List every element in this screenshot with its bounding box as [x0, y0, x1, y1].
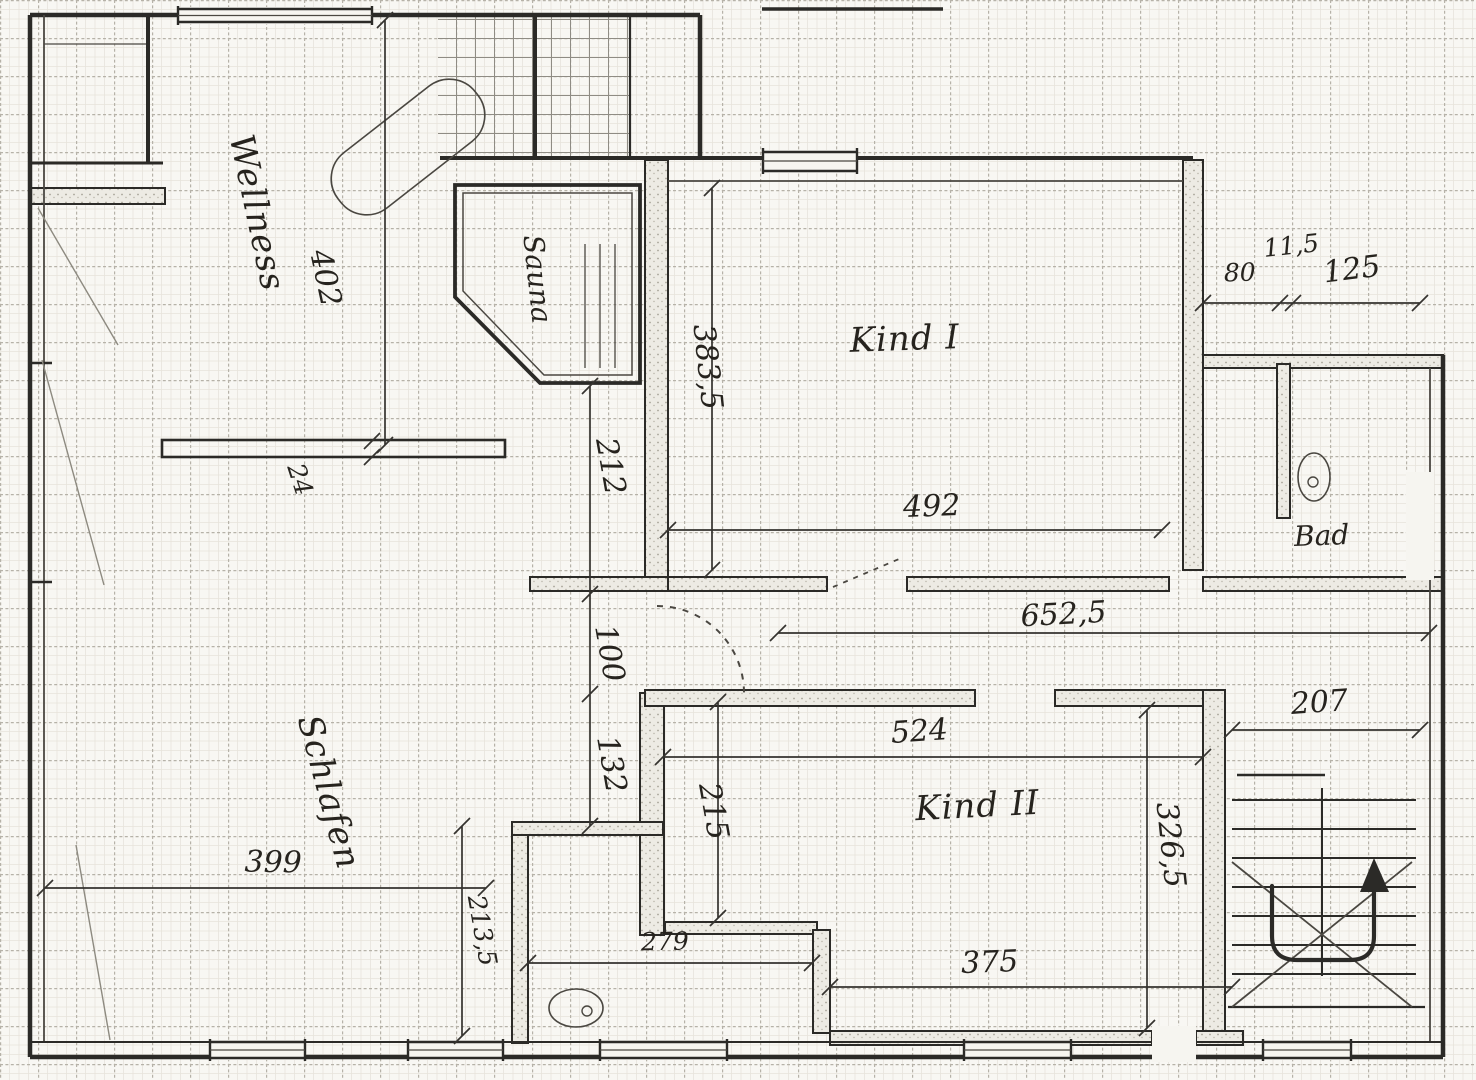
- wall-kind1-bottom-a: [668, 577, 827, 591]
- wall-opening: [1152, 1026, 1196, 1062]
- wall-bath-left: [512, 835, 528, 1043]
- window: [763, 148, 857, 174]
- dim-label-279: 279: [640, 927, 689, 957]
- window: [964, 1039, 1071, 1061]
- wall-kind1-bottom-b: [907, 577, 1169, 591]
- dim-label-80: 80: [1223, 257, 1256, 287]
- dim-label-399: 399: [244, 845, 302, 881]
- wall-bad-partition: [1277, 364, 1290, 518]
- window: [1263, 1039, 1351, 1061]
- window: [600, 1039, 727, 1061]
- dim-label-375: 375: [960, 944, 1018, 981]
- room-label-kind2: Kind II: [913, 783, 1041, 830]
- scanned-floor-plan: Wellness Sauna Schlafen Kind I Kind II B…: [0, 0, 1476, 1080]
- dim-label-524: 524: [890, 712, 950, 751]
- wall-corridor-left: [640, 693, 664, 935]
- room-label-kind1: Kind I: [848, 317, 961, 361]
- dim-label-492: 492: [901, 488, 960, 525]
- dim-label-11-5: 11,5: [1262, 228, 1320, 263]
- wall-corridor-stub: [530, 577, 668, 591]
- wall-kind2-top-a: [645, 690, 975, 706]
- dim-label-125: 125: [1321, 249, 1382, 291]
- window: [178, 6, 372, 25]
- window: [210, 1039, 305, 1061]
- wall-kind2-top-b: [1055, 690, 1225, 706]
- dim-label-652-5: 652,5: [1020, 595, 1108, 634]
- wall-bath-right: [813, 930, 830, 1033]
- wall-kind2-right: [1203, 690, 1225, 1035]
- wall-wellness-kind1: [645, 160, 668, 590]
- wall-shower-stub: [30, 188, 165, 204]
- dim-label-207: 207: [1289, 683, 1350, 722]
- wall-bad-top: [1197, 355, 1443, 368]
- graph-paper-grid: [0, 0, 1476, 1080]
- floor-plan-drawing: Wellness Sauna Schlafen Kind I Kind II B…: [0, 0, 1476, 1080]
- wall-kind1-right: [1183, 160, 1203, 570]
- window: [1406, 472, 1434, 580]
- room-label-bad: Bad: [1293, 518, 1350, 553]
